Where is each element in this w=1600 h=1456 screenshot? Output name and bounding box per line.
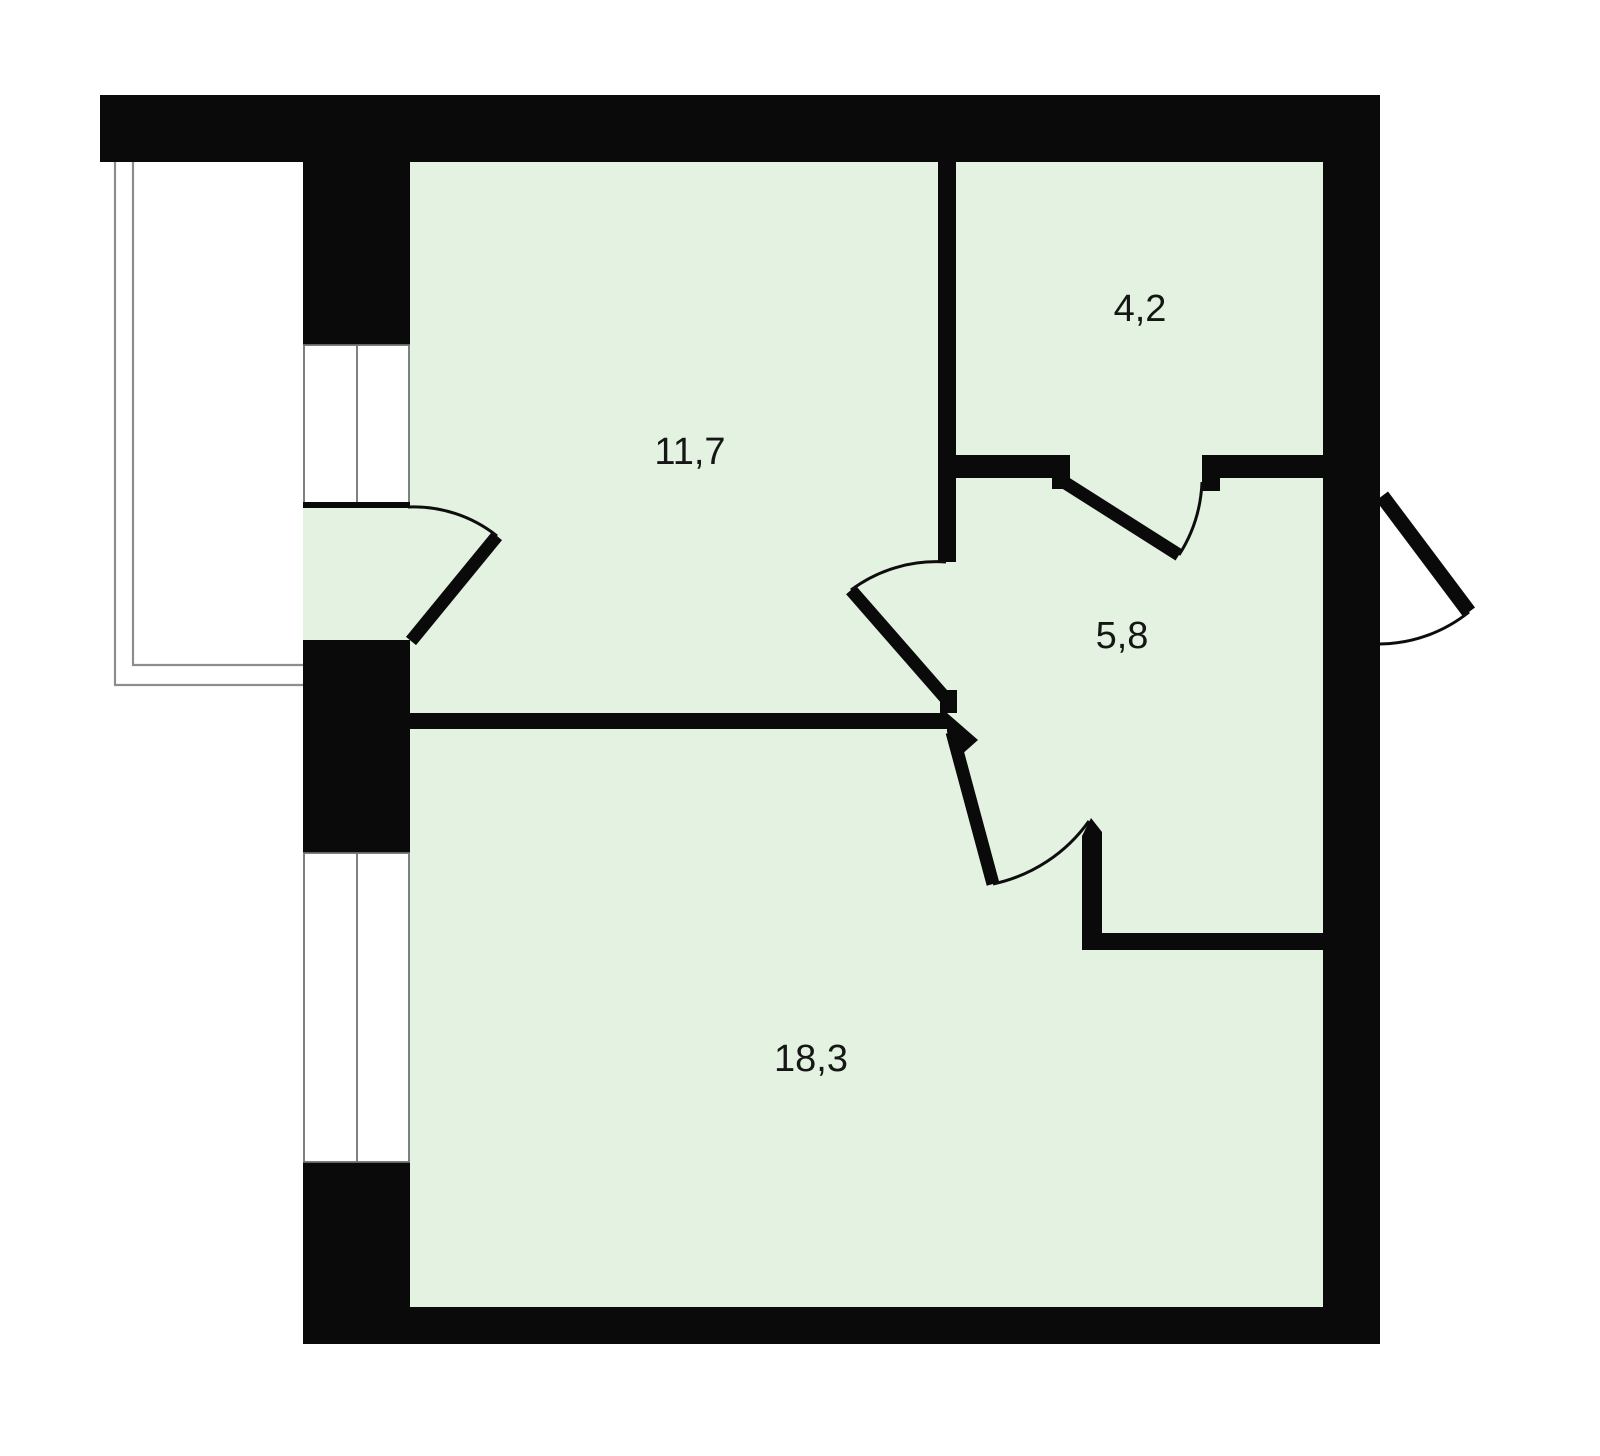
wall-corridor-living-horizontal: [1082, 933, 1323, 950]
left-wall-pier-lower: [303, 1162, 410, 1307]
wall-corridor-living-stub: [1082, 818, 1102, 950]
room-label-18-3: 18,3: [774, 1038, 848, 1080]
left-wall-pier-middle: [303, 640, 410, 853]
room-label-11-7: 11,7: [654, 431, 725, 473]
balcony-door-opening: [303, 507, 410, 640]
room-label-5-8: 5,8: [1096, 615, 1149, 657]
top-wall: [100, 95, 1380, 162]
room-label-4-2: 4,2: [1114, 288, 1167, 330]
wall-hall-corridor-left: [956, 455, 1070, 478]
wall-bedroom-hall-vertical: [938, 162, 956, 562]
left-wall-pier-upper: [303, 162, 410, 345]
wall-bedroom-living-horizontal: [410, 713, 947, 729]
balcony-door-threshold: [303, 502, 410, 508]
apartment-interior-fill: [410, 162, 1323, 1307]
floor-plan-canvas: 11,7 4,2 5,8 18,3: [0, 0, 1600, 1456]
wall-hall-corridor-right: [1202, 455, 1323, 478]
door-stop-hall-right-jamb: [1202, 478, 1220, 491]
bottom-wall: [303, 1307, 1380, 1344]
right-wall: [1323, 162, 1380, 1344]
floor-plan: 11,7 4,2 5,8 18,3: [0, 0, 1600, 1456]
